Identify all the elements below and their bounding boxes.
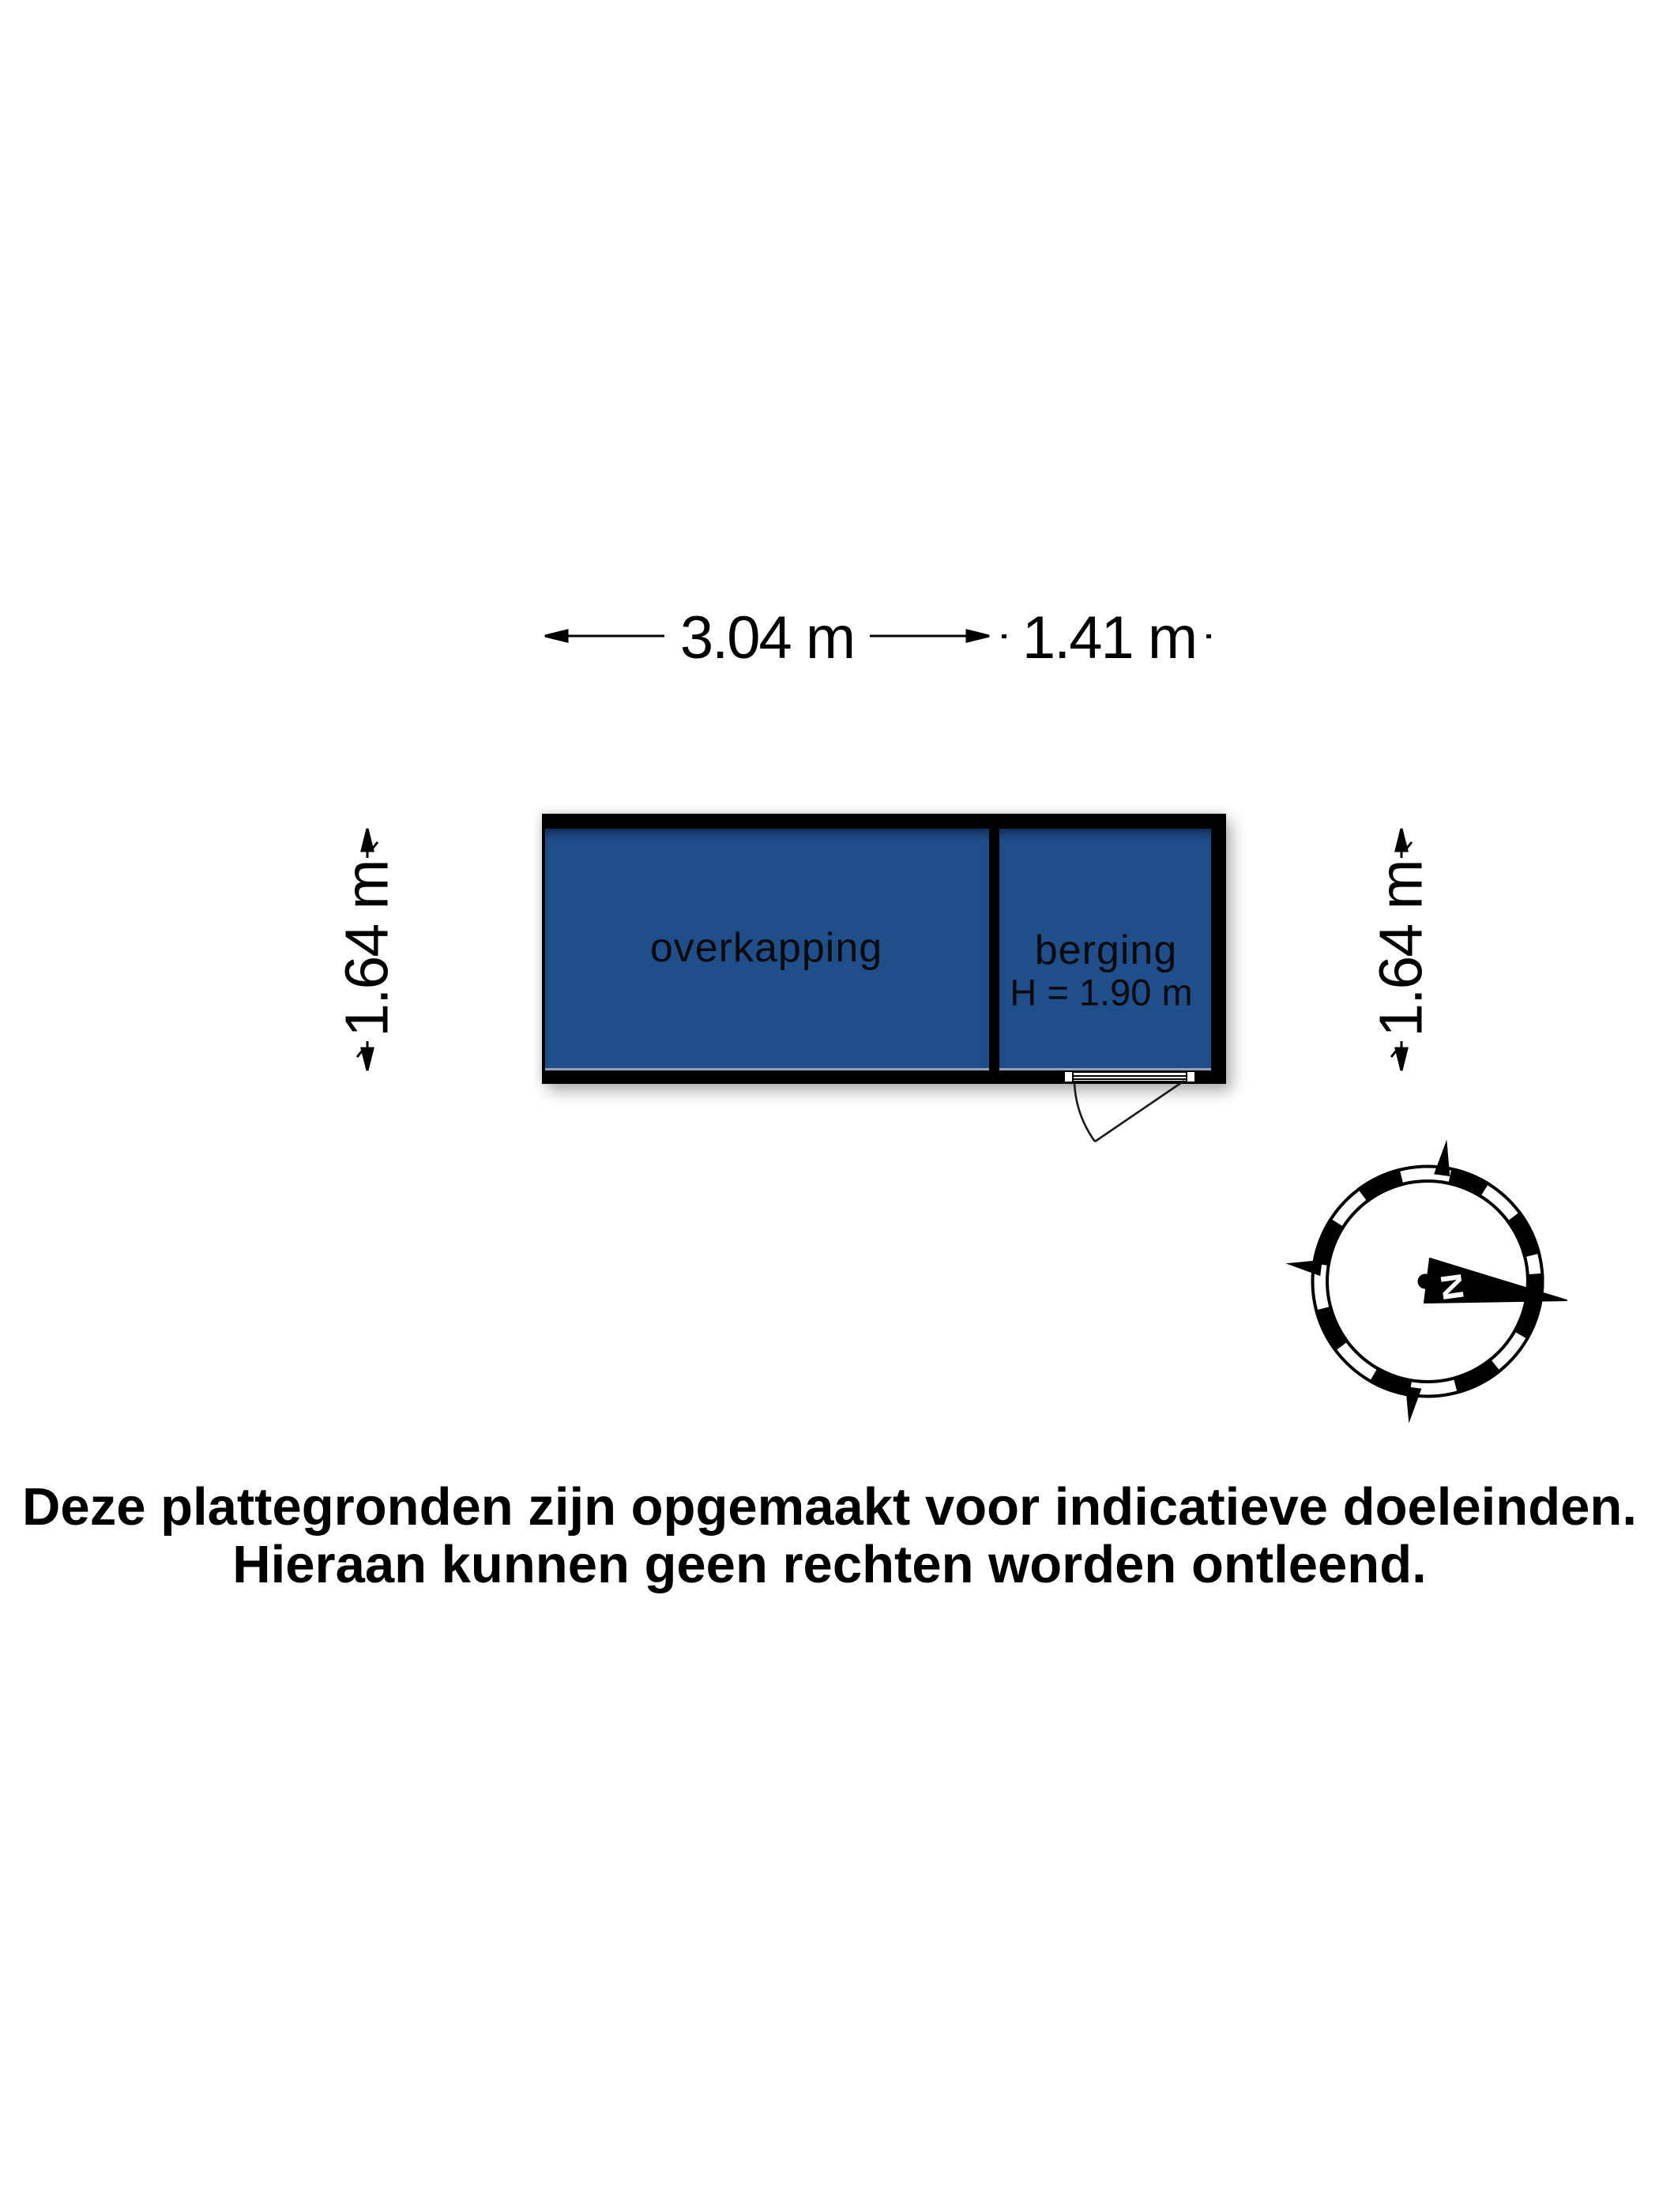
svg-text:N: N	[1434, 1271, 1469, 1303]
